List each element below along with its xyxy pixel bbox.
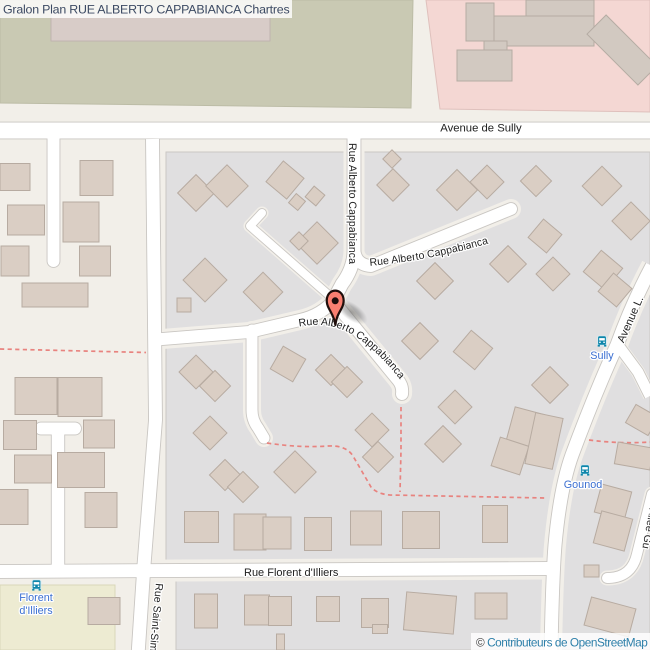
svg-text:Rue Alberto Cappabianca: Rue Alberto Cappabianca [346, 143, 358, 264]
svg-text:Gounod: Gounod [564, 479, 602, 491]
svg-text:Sully: Sully [590, 350, 614, 362]
svg-text:© Contributeurs de OpenStreetM: © Contributeurs de OpenStreetMap [476, 636, 648, 650]
svg-text:Gralon Plan RUE ALBERTO CAPPAB: Gralon Plan RUE ALBERTO CAPPABIANCA Char… [3, 3, 289, 17]
svg-text:Florent: Florent [19, 592, 53, 604]
svg-text:Rue Florent d'Illiers: Rue Florent d'Illiers [244, 567, 339, 579]
svg-text:Avenue de Sully: Avenue de Sully [440, 123, 522, 135]
svg-text:d'Illiers: d'Illiers [19, 605, 53, 617]
